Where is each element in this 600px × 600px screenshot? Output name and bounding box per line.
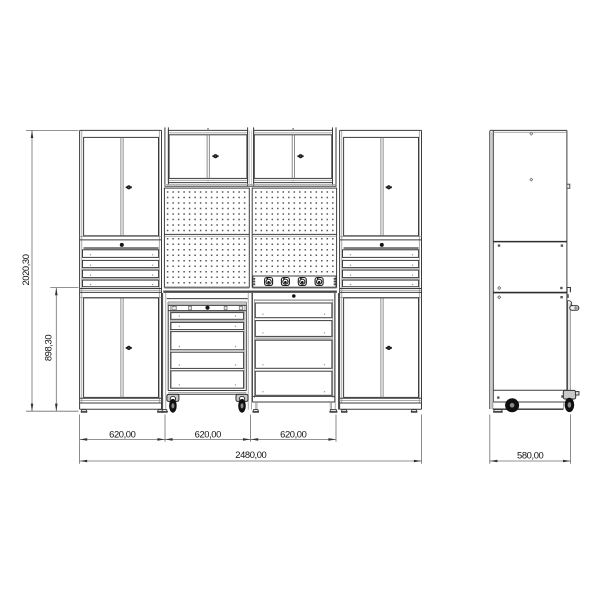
svg-text:620,00: 620,00 <box>195 428 221 439</box>
svg-text:2480,00: 2480,00 <box>235 449 266 460</box>
svg-text:898,30: 898,30 <box>43 335 54 361</box>
svg-text:580,00: 580,00 <box>517 449 543 460</box>
svg-text:620,00: 620,00 <box>109 428 135 439</box>
svg-text:620,00: 620,00 <box>280 428 306 439</box>
svg-text:2020,30: 2020,30 <box>20 254 31 285</box>
